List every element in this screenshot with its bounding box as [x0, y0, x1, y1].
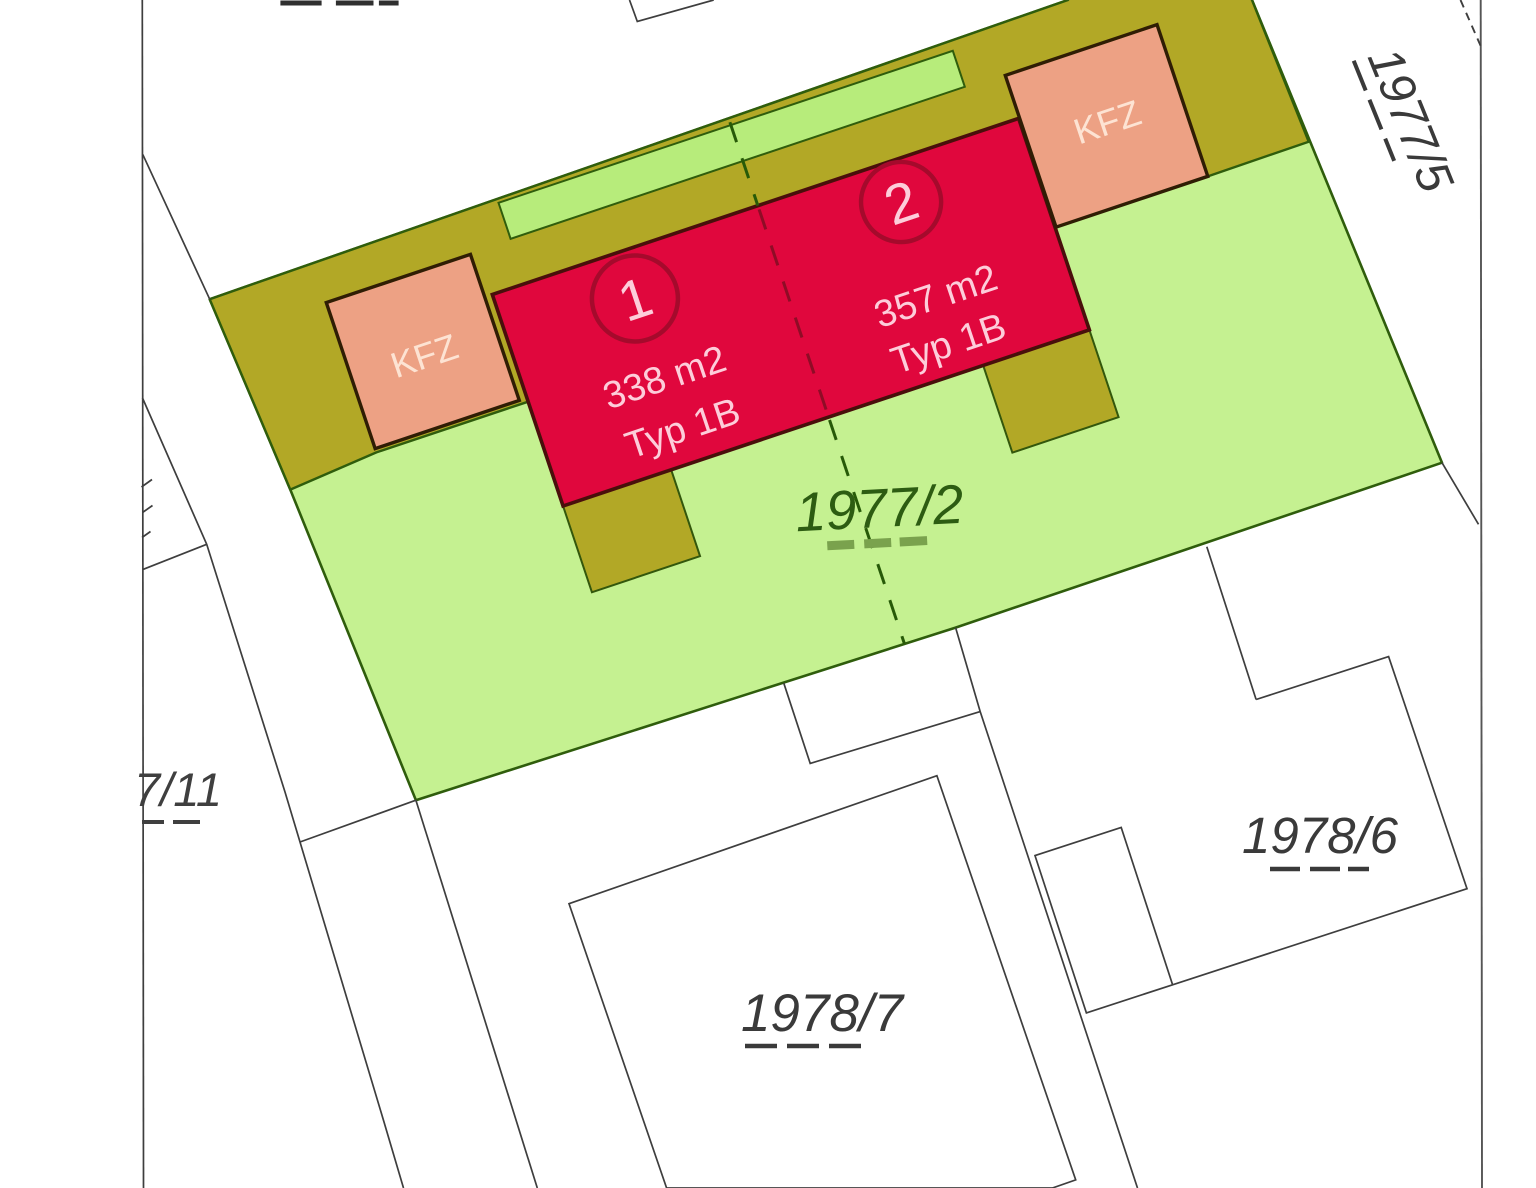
svg-text:1978/7: 1978/7	[741, 984, 906, 1043]
svg-text:1978/6: 1978/6	[1242, 807, 1399, 864]
svg-text:7/11: 7/11	[134, 763, 222, 816]
svg-text:1977/2: 1977/2	[794, 473, 965, 544]
